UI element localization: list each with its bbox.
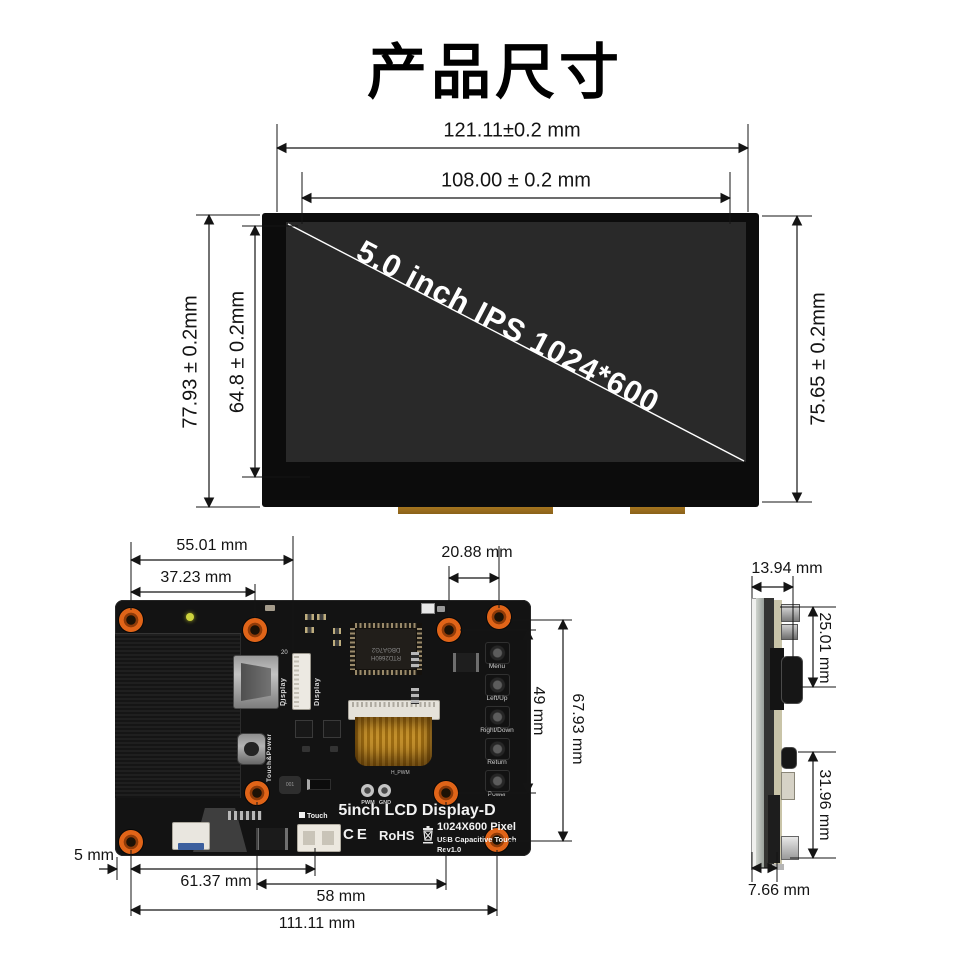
button-power-label: Power <box>474 791 520 798</box>
silkscreen-pwm: H_PWM <box>391 770 410 776</box>
touch-label-text: Touch <box>307 813 327 820</box>
chip-marking-line1: RTD2660H <box>356 653 416 661</box>
side-connector <box>781 772 795 800</box>
side-foot <box>772 864 784 870</box>
button-menu-label: Menu <box>474 663 520 670</box>
button-menu <box>485 642 510 664</box>
display-ffc-connector <box>292 653 311 710</box>
button-rightdown <box>485 706 510 728</box>
transistor <box>330 746 338 752</box>
product-dimensions-figure: 产品尺寸 5.0 inch IPS 1024*600 121.11±0.2 mm… <box>0 0 960 960</box>
usbc-connector <box>237 733 266 765</box>
resistor-array <box>411 688 419 704</box>
dim-outer-width: 121.11±0.2 mm <box>443 120 580 143</box>
dim-pcb-55: 55.01 mm <box>176 537 247 555</box>
dim-pcb-37: 37.23 mm <box>160 569 231 587</box>
spec-revision: Rev1.0 <box>437 845 531 854</box>
mounting-hole-tl <box>119 608 143 632</box>
pcb-back-view: Display 20 1 Display Touch&Power RTD2660… <box>115 600 531 856</box>
ffc-pin1-label: 1 <box>284 700 287 706</box>
led-indicator <box>186 613 194 621</box>
button-leftup <box>485 674 510 696</box>
side-panel-layer <box>756 598 764 868</box>
side-button-stack <box>781 604 800 622</box>
touch-connector-slot <box>303 831 315 845</box>
dim-right-height: 75.65 ± 0.2mm <box>808 292 831 425</box>
smd-component <box>437 606 445 612</box>
spec-touch-type: USB Capacitive Touch <box>437 835 531 844</box>
touch-connector-label: Touch <box>299 812 327 820</box>
pwm-pad <box>361 784 374 797</box>
dim-pcb-61: 61.37 mm <box>180 873 251 891</box>
smd-component <box>305 627 314 633</box>
rohs-mark: RoHS <box>379 828 414 843</box>
smd-component <box>265 605 275 611</box>
chip-pins-bottom <box>355 670 417 675</box>
lcd-front-view <box>262 213 759 507</box>
smd-component <box>317 614 326 620</box>
smd-component <box>305 614 314 620</box>
touchpanel-ffc <box>172 822 210 850</box>
inductor: 001 <box>279 776 301 794</box>
smd-component-white <box>421 603 435 614</box>
power-ic <box>323 720 341 738</box>
dim-pcb-67: 67.93 mm <box>568 693 586 764</box>
dim-pcb-58: 58 mm <box>317 888 366 906</box>
hdmi-port-label: Display <box>280 658 287 706</box>
spec-pixels: 1024X600 Pixel <box>437 821 531 833</box>
spec-block: 1024X600 Pixel USB Capacitive Touch Rev1… <box>437 821 531 854</box>
mounting-hole-bl <box>119 830 143 854</box>
page-title: 产品尺寸 <box>35 24 955 111</box>
transistor <box>302 746 310 752</box>
chip-marking-line2: DBGA7G2 <box>356 645 416 653</box>
touchpanel-ffc-tab <box>178 843 204 850</box>
smd-component <box>333 628 341 634</box>
dim-pcb-49: 49 mm <box>529 687 547 736</box>
usbc-port-label: Touch&Power <box>266 720 273 782</box>
usbc-opening <box>244 742 259 756</box>
button-leftup-label: Left/Up <box>474 695 520 702</box>
dim-side-3196: 31.96 mm <box>815 769 833 840</box>
mounting-hole-tr <box>487 605 511 629</box>
lcd-back-panel <box>115 633 241 798</box>
side-button-stack-2 <box>781 624 798 640</box>
touch-connector-slot <box>322 831 334 845</box>
dim-pcb-5: 5 mm <box>74 847 114 865</box>
touch-label-square <box>299 812 305 818</box>
power-ic <box>295 720 313 738</box>
dim-side-766: 7.66 mm <box>748 882 810 900</box>
weee-bin-icon <box>420 825 436 850</box>
button-power <box>485 770 510 792</box>
dim-outer-height: 77.93 ± 0.2mm <box>180 295 203 428</box>
display-ffc-label: Display <box>314 658 321 706</box>
chip-pins-left <box>350 628 355 670</box>
dim-active-height: 64.8 ± 0.2mm <box>227 291 250 413</box>
chip-body: RTD2660H DBGA7G2 <box>356 629 416 669</box>
button-rightdown-label: Right/Down <box>474 727 520 734</box>
product-name: 5inch LCD Display-D <box>337 802 497 820</box>
button-return <box>485 738 510 760</box>
side-hdmi-connector <box>781 656 803 704</box>
touch-connector <box>297 824 341 852</box>
mounting-hole-inner-top-right <box>437 618 461 642</box>
dim-pcb-111: 111.11 mm <box>279 915 355 933</box>
mounting-hole-inner-bottom-left <box>245 781 269 805</box>
chip-pins-top <box>355 623 417 628</box>
mounting-hole-inner-top-left <box>243 618 267 642</box>
ffc-pins <box>294 656 299 707</box>
smd-component <box>333 640 341 646</box>
resistor-array <box>228 811 262 820</box>
dim-side-1394: 13.94 mm <box>751 560 822 578</box>
diode <box>307 779 331 790</box>
ce-mark: CE <box>343 826 370 843</box>
resistor-array <box>411 652 419 668</box>
hdmi-connector <box>233 655 279 709</box>
lcd-ffc-pins <box>352 702 436 707</box>
dim-side-2501: 25.01 mm <box>815 612 833 683</box>
side-shield-lower <box>768 795 780 863</box>
side-usbc-connector <box>781 747 797 769</box>
dim-pcb-20: 20.88 mm <box>441 544 512 562</box>
hdmi-opening <box>241 663 271 701</box>
ffc-pin20-label: 20 <box>281 650 288 656</box>
lcd-flex-cable <box>355 717 432 766</box>
side-bottom-connector <box>781 836 799 860</box>
gnd-pad <box>378 784 391 797</box>
dim-active-width: 108.00 ± 0.2 mm <box>441 170 591 193</box>
button-return-label: Return <box>474 759 520 766</box>
eeprom-ic <box>256 828 288 850</box>
